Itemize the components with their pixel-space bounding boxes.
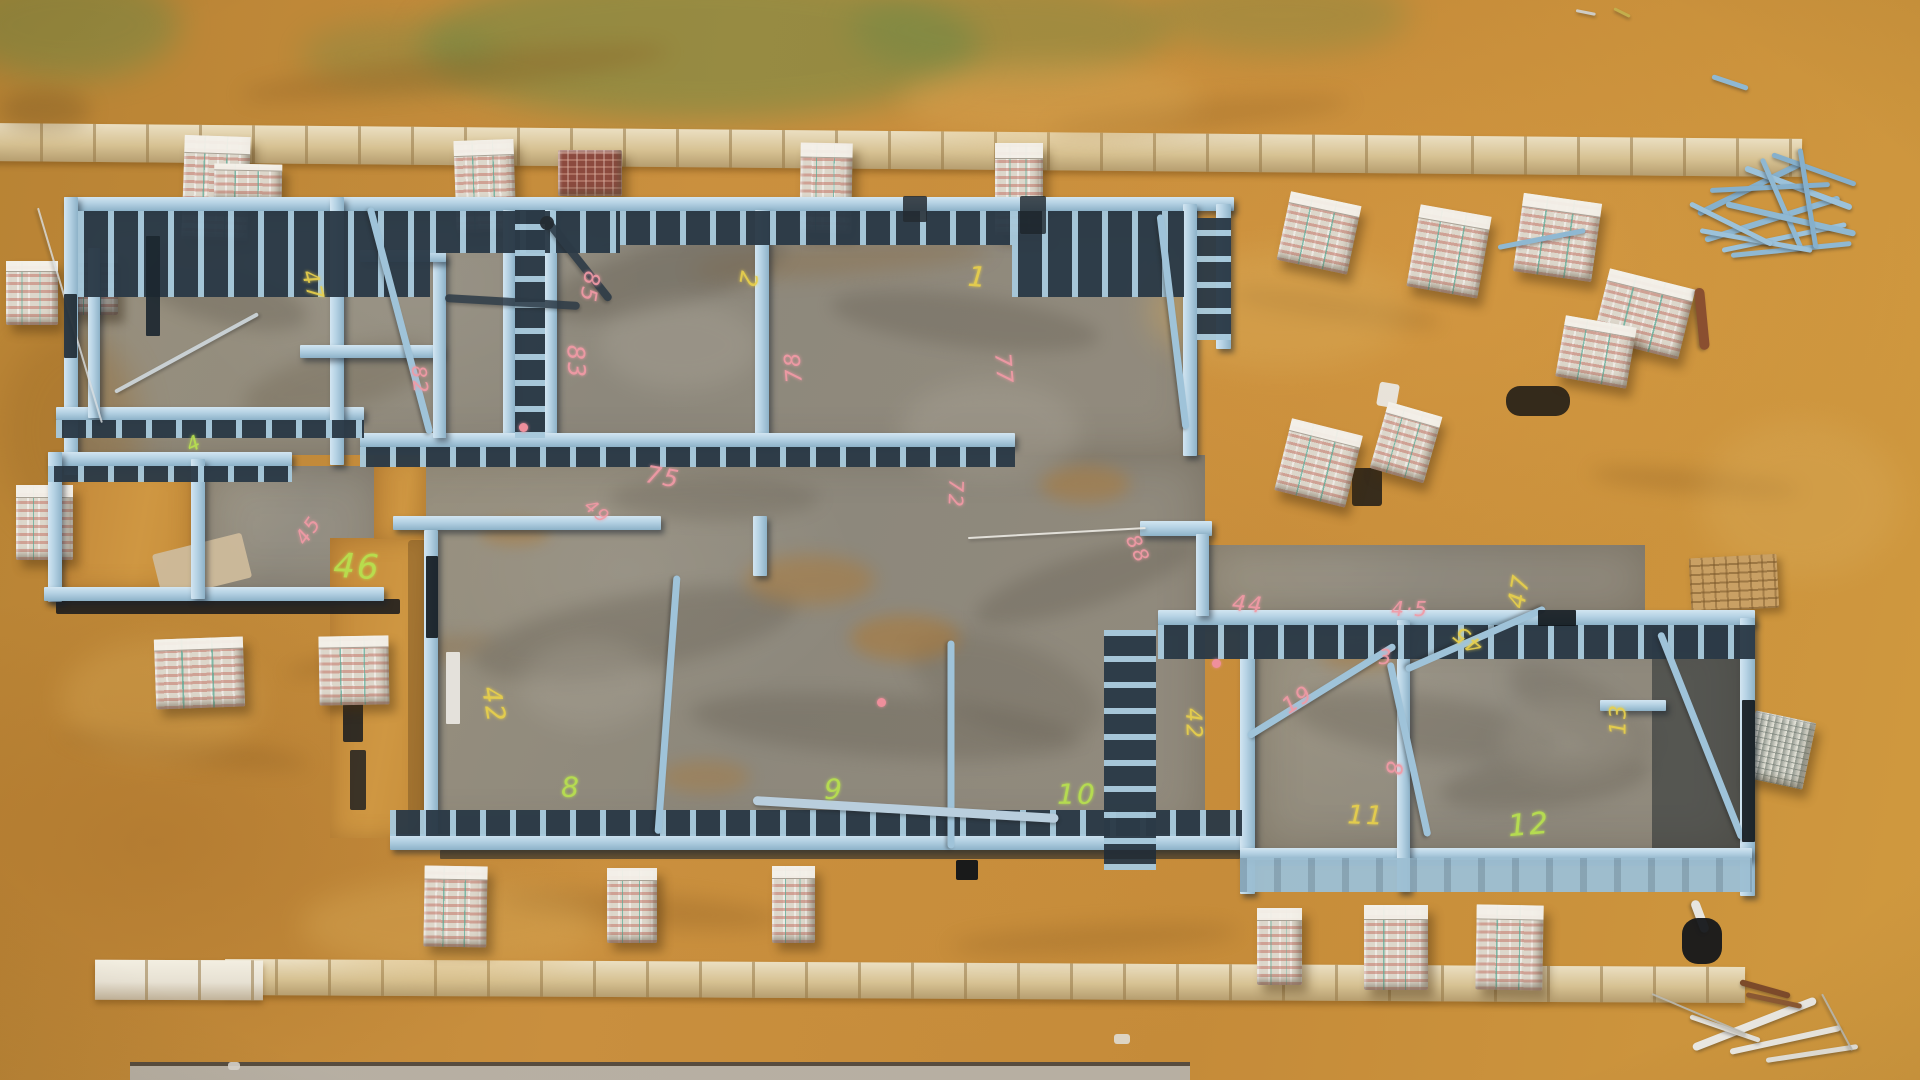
window-opening bbox=[64, 294, 77, 358]
brick-pallet bbox=[1406, 204, 1491, 298]
garage-shadow bbox=[1652, 628, 1742, 858]
shadow-slot bbox=[350, 750, 366, 810]
ground-stain bbox=[520, 640, 660, 730]
debris bbox=[228, 1062, 240, 1070]
brick-pallet bbox=[318, 635, 389, 705]
joist-ladder-band bbox=[48, 466, 292, 482]
pipe-penetration bbox=[540, 216, 554, 230]
spray-marking-11: 11 bbox=[1347, 800, 1385, 831]
steel-offcut bbox=[1711, 74, 1749, 91]
steel-frame-wall bbox=[48, 452, 292, 466]
spray-marking-82: 82 bbox=[407, 364, 433, 395]
brick-pallet bbox=[1370, 402, 1443, 484]
spray-marking-42: 42 bbox=[475, 684, 511, 726]
joist-ladder-band bbox=[56, 420, 364, 438]
joist-ladder-band bbox=[1104, 630, 1156, 870]
paved-road-edge bbox=[130, 1062, 1190, 1080]
joist-ladder-band bbox=[515, 210, 545, 438]
black-hose bbox=[1682, 918, 1722, 964]
dark-object bbox=[1506, 386, 1570, 416]
steel-frame-wall bbox=[300, 345, 442, 358]
brick-pallet bbox=[1274, 418, 1363, 507]
vegetation-patch bbox=[1150, 0, 1410, 55]
spray-dot bbox=[519, 423, 528, 432]
brick-pallet bbox=[1475, 904, 1543, 990]
brick-pallet bbox=[558, 150, 622, 196]
ground-stain bbox=[660, 760, 750, 794]
spray-marking-45: 4·5 bbox=[1391, 597, 1429, 621]
pvc-pipe bbox=[1766, 1044, 1859, 1063]
black-tarp bbox=[1352, 468, 1382, 506]
brick-pallet bbox=[6, 261, 58, 325]
ground-stain bbox=[900, 60, 1200, 140]
debris bbox=[1114, 1034, 1130, 1044]
spray-marking-12: 12 bbox=[1506, 806, 1551, 845]
limestone-curb bbox=[95, 960, 263, 1001]
debris-stick bbox=[1576, 9, 1597, 16]
steel-frame-wall bbox=[44, 587, 384, 601]
footing-shadow bbox=[56, 599, 400, 614]
dark-object bbox=[903, 196, 927, 222]
spray-marking-8: 8 bbox=[1380, 760, 1406, 778]
brick-pallet bbox=[16, 485, 73, 560]
loose-brick-stack bbox=[1689, 554, 1780, 613]
ground-stain bbox=[0, 90, 90, 130]
steel-rod bbox=[1821, 994, 1853, 1051]
brick-pallet bbox=[607, 868, 657, 943]
ground-stain bbox=[850, 615, 960, 661]
brick-pallet bbox=[423, 865, 487, 947]
window-opening bbox=[426, 556, 438, 638]
spray-marking-47: 47 bbox=[1502, 572, 1536, 611]
spray-marking-9: 9 bbox=[824, 773, 844, 806]
spray-marking-8: 8 bbox=[561, 771, 581, 804]
aerial-construction-photo: 4721424247451311446891012828583787577728… bbox=[0, 0, 1920, 1080]
dark-object bbox=[1020, 196, 1046, 234]
spray-marking-13: 13 bbox=[1607, 703, 1632, 735]
spray-dot bbox=[1212, 659, 1221, 668]
joist-ladder-band bbox=[620, 211, 1012, 245]
spray-marking-75: 75 bbox=[644, 460, 683, 494]
ground-stain bbox=[1040, 465, 1130, 503]
steel-frame-wall bbox=[393, 516, 661, 530]
steel-frame-wall bbox=[755, 210, 769, 445]
spray-marking-78: 78 bbox=[780, 350, 808, 384]
brick-pallet bbox=[1555, 315, 1637, 389]
ground-stain bbox=[610, 476, 820, 520]
spray-marking-1: 1 bbox=[967, 260, 990, 295]
steel-frame-wall bbox=[753, 516, 767, 576]
steel-frame-wall bbox=[56, 407, 364, 420]
spray-marking-46: 46 bbox=[332, 546, 381, 588]
spray-marking-77: 77 bbox=[989, 352, 1017, 386]
spray-marking-42: 42 bbox=[1180, 708, 1206, 741]
black-object bbox=[956, 860, 978, 880]
spray-marking-3: 3 bbox=[1379, 645, 1394, 669]
spray-marking-72: 72 bbox=[943, 479, 968, 509]
spray-marking-83: 83 bbox=[561, 344, 590, 380]
ground-stain bbox=[949, 917, 1240, 960]
steel-frame-wall bbox=[433, 255, 446, 438]
brick-pallet bbox=[1277, 191, 1362, 274]
joist-ladder-band bbox=[360, 447, 1015, 467]
ground-stain bbox=[600, 300, 760, 390]
spray-dot bbox=[877, 698, 886, 707]
spray-marking-44: 44 bbox=[1231, 591, 1265, 619]
frame-opening bbox=[1538, 610, 1576, 626]
steel-frame-wall bbox=[1196, 534, 1209, 616]
wrapped-jamb bbox=[446, 652, 460, 724]
window-opening bbox=[146, 236, 160, 336]
door-opening bbox=[1742, 700, 1755, 842]
steel-frame-wall bbox=[360, 433, 1015, 447]
spray-marking-10: 10 bbox=[1057, 778, 1097, 811]
slab-edge-shadow bbox=[440, 850, 1240, 859]
steel-frame-wall bbox=[64, 197, 1234, 211]
joist-ladder-band bbox=[1197, 218, 1231, 340]
rusty-angle bbox=[1694, 288, 1710, 351]
debris-stick bbox=[1613, 7, 1630, 18]
vegetation-patch bbox=[0, 0, 180, 80]
brick-pallet bbox=[154, 636, 245, 709]
brick-pallet bbox=[1257, 908, 1302, 985]
brick-pallet bbox=[772, 866, 815, 943]
joist-ladder-band bbox=[1240, 858, 1752, 892]
brick-pallet bbox=[1364, 905, 1428, 990]
